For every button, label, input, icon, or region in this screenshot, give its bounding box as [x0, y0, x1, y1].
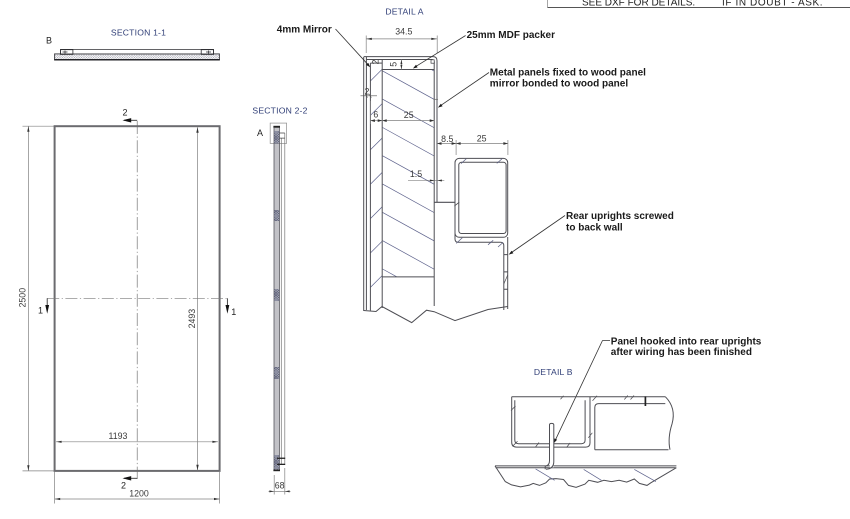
svg-text:1200: 1200 [129, 489, 149, 499]
svg-text:SECTION 2-2: SECTION 2-2 [252, 106, 307, 116]
svg-text:1: 1 [38, 306, 43, 316]
svg-text:8.5: 8.5 [441, 134, 453, 144]
svg-text:2: 2 [121, 480, 126, 490]
svg-text:34.5: 34.5 [395, 27, 412, 37]
svg-text:A: A [257, 128, 263, 138]
svg-text:DETAIL B: DETAIL B [534, 367, 573, 377]
svg-text:IF IN DOUBT - ASK.: IF IN DOUBT - ASK. [722, 0, 823, 9]
svg-text:SEE DXF FOR DETAILS.: SEE DXF FOR DETAILS. [582, 0, 695, 9]
svg-text:2: 2 [370, 59, 380, 64]
svg-text:5: 5 [388, 62, 398, 67]
svg-text:68: 68 [275, 480, 285, 490]
svg-text:to back wall: to back wall [566, 222, 623, 233]
svg-text:1193: 1193 [109, 431, 128, 441]
svg-text:1: 1 [231, 307, 236, 317]
svg-text:2: 2 [122, 107, 127, 117]
svg-text:25: 25 [477, 134, 487, 144]
svg-text:25mm MDF packer: 25mm MDF packer [467, 30, 555, 41]
svg-text:Panel hooked into rear upright: Panel hooked into rear uprights [611, 336, 762, 347]
svg-text:mirror bonded to wood panel: mirror bonded to wood panel [490, 79, 629, 90]
svg-text:25: 25 [404, 110, 414, 120]
svg-text:Rear uprights screwed: Rear uprights screwed [566, 211, 674, 222]
svg-text:2: 2 [365, 87, 370, 97]
svg-text:SECTION 1-1: SECTION 1-1 [111, 28, 166, 38]
svg-text:6: 6 [373, 110, 378, 120]
svg-text:Metal panels fixed to wood pan: Metal panels fixed to wood panel [490, 67, 646, 78]
svg-text:1.5: 1.5 [410, 169, 422, 179]
svg-text:B: B [46, 36, 52, 46]
svg-text:after wiring has been finished: after wiring has been finished [611, 347, 752, 358]
svg-text:2500: 2500 [18, 288, 28, 308]
svg-text:2493: 2493 [187, 309, 197, 329]
svg-text:4mm Mirror: 4mm Mirror [277, 24, 332, 35]
svg-text:DETAIL A: DETAIL A [385, 6, 423, 16]
